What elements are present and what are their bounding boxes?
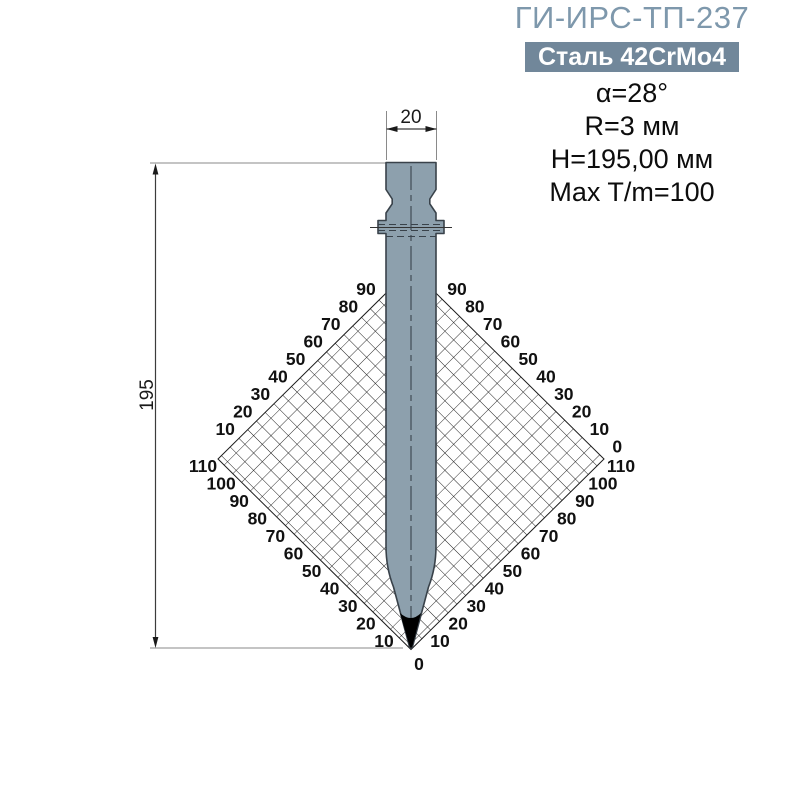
chart-edge-label: 70 [539,526,559,546]
chart-edge-label: 50 [518,349,538,369]
spec-max-tonnage: Max T/m=100 [502,176,762,209]
chart-edge-label: 50 [302,561,322,581]
chart-edge-label: 20 [448,614,468,634]
arrow-up-icon [153,164,159,175]
height-dimension: 195 [137,164,158,649]
chart-edge-label: 40 [268,367,288,387]
chart-edge-label: 60 [303,332,323,352]
chart-edge-label: 50 [286,349,306,369]
arrow-left-icon [387,126,398,132]
chart-edge-label: 60 [521,544,541,564]
material-badge: Сталь 42CrMo4 [525,42,739,72]
chart-edge-label: 20 [233,402,253,422]
chart-edge-label: 90 [447,279,467,299]
chart-edge-label: 80 [557,509,577,529]
chart-edge-label: 10 [590,419,610,439]
dim-height-label: 195 [137,379,158,411]
chart-edge-label: 70 [266,526,286,546]
width-dimension: 20 [387,107,437,132]
chart-edge-label: 80 [248,509,268,529]
tool-spec-sheet: 20 195 908070605040302010908070605040302… [0,0,800,800]
chart-edge-label: 60 [501,332,521,352]
chart-edge-label: 20 [356,614,376,634]
chart-edge-label: 10 [430,631,450,651]
chart-edge-label: 40 [485,579,505,599]
chart-edge-label: 30 [251,384,271,404]
spec-panel: ГИ-ИРС-ТП-237 Сталь 42CrMo4 α=28° R=3 мм… [502,0,762,209]
chart-edge-label: 90 [575,491,595,511]
chart-edge-label: 40 [320,579,340,599]
spec-list: α=28° R=3 мм H=195,00 мм Max T/m=100 [502,77,762,209]
dim-width-label: 20 [400,107,421,128]
chart-edge-label: 70 [483,314,503,334]
page-title: ГИ-ИРС-ТП-237 [502,0,762,36]
chart-edge-label: 60 [284,544,304,564]
chart-edge-label: 10 [374,631,394,651]
chart-edge-label: 30 [466,596,486,616]
spec-radius: R=3 мм [502,110,762,143]
chart-edge-label: 80 [339,297,359,317]
spec-height: H=195,00 мм [502,143,762,176]
chart-edge-label: 20 [572,402,592,422]
chart-edge-label: 0 [612,437,622,457]
arrow-right-icon [426,126,437,132]
chart-edge-label: 80 [465,297,485,317]
spec-angle: α=28° [502,77,762,110]
chart-edge-label: 30 [338,596,358,616]
chart-edge-label: 50 [503,561,523,581]
chart-edge-label: 90 [229,491,249,511]
chart-edge-label: 10 [215,419,235,439]
chart-bottom-label: 0 [414,654,424,674]
chart-edge-label: 40 [536,367,556,387]
chart-edge-label: 70 [321,314,341,334]
chart-edge-label: 30 [554,384,574,404]
arrow-down-icon [153,637,159,648]
chart-edge-label: 90 [356,279,376,299]
